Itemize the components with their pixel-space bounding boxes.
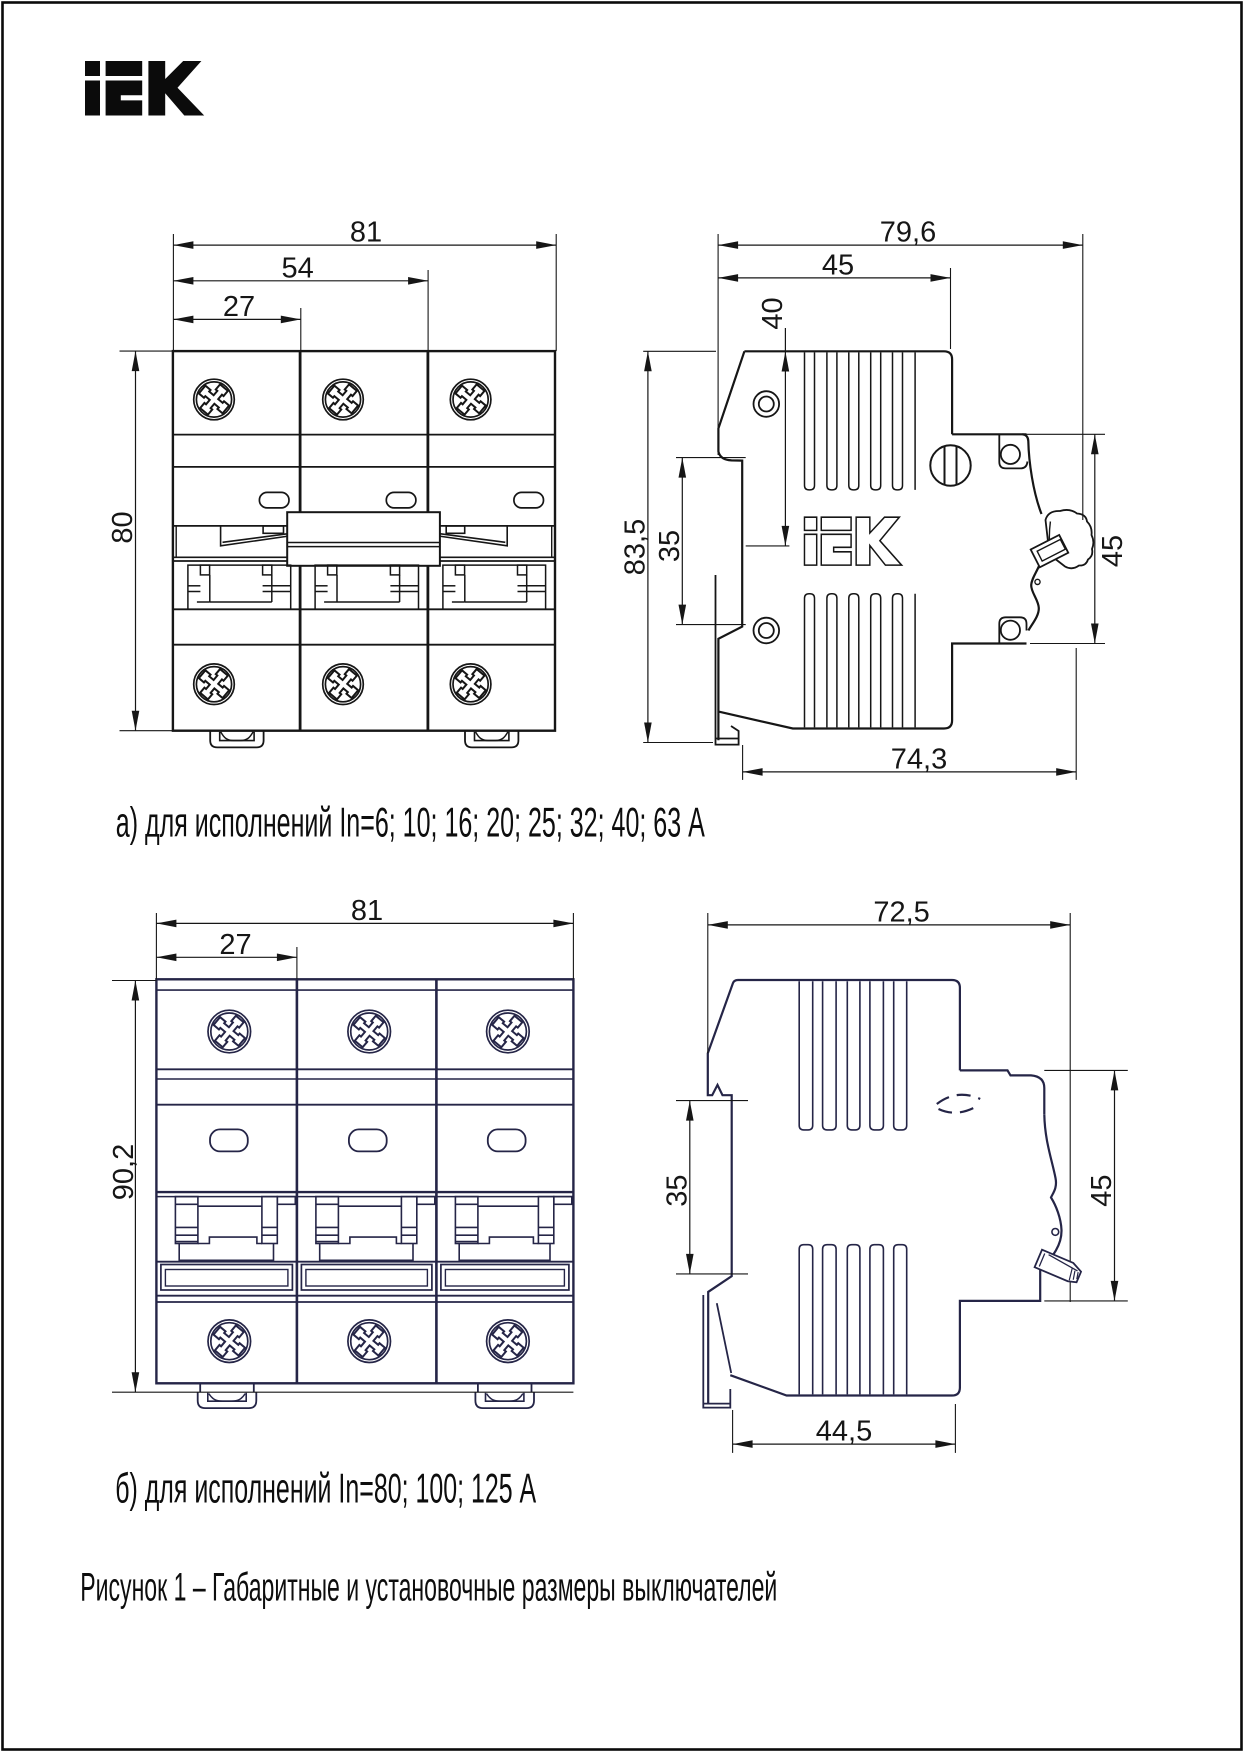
svg-text:45: 45 [822,249,854,281]
svg-text:81: 81 [351,895,383,927]
svg-text:35: 35 [661,1174,693,1206]
svg-text:90,2: 90,2 [108,1144,140,1200]
svg-text:79,6: 79,6 [880,217,936,249]
svg-text:83,5: 83,5 [619,519,651,575]
svg-text:45: 45 [1097,535,1129,567]
svg-text:81: 81 [350,217,382,249]
svg-text:27: 27 [223,291,255,323]
svg-text:44,5: 44,5 [816,1416,872,1448]
svg-text:40: 40 [757,297,789,329]
svg-text:а) для исполнений In=6; 10; 16: а) для исполнений In=6; 10; 16; 20; 25; … [116,799,705,846]
svg-text:54: 54 [281,252,313,284]
svg-text:Рисунок 1 – Габаритные и устан: Рисунок 1 – Габаритные и установочные ра… [80,1566,777,1610]
svg-text:35: 35 [654,530,686,562]
svg-text:б) для исполнений In=80; 100;: б) для исполнений In=80; 100; 125 А [115,1465,536,1512]
svg-text:72,5: 72,5 [873,896,929,928]
svg-text:74,3: 74,3 [891,743,947,775]
svg-text:45: 45 [1086,1174,1118,1206]
svg-text:80: 80 [107,511,139,543]
svg-text:27: 27 [219,929,251,961]
